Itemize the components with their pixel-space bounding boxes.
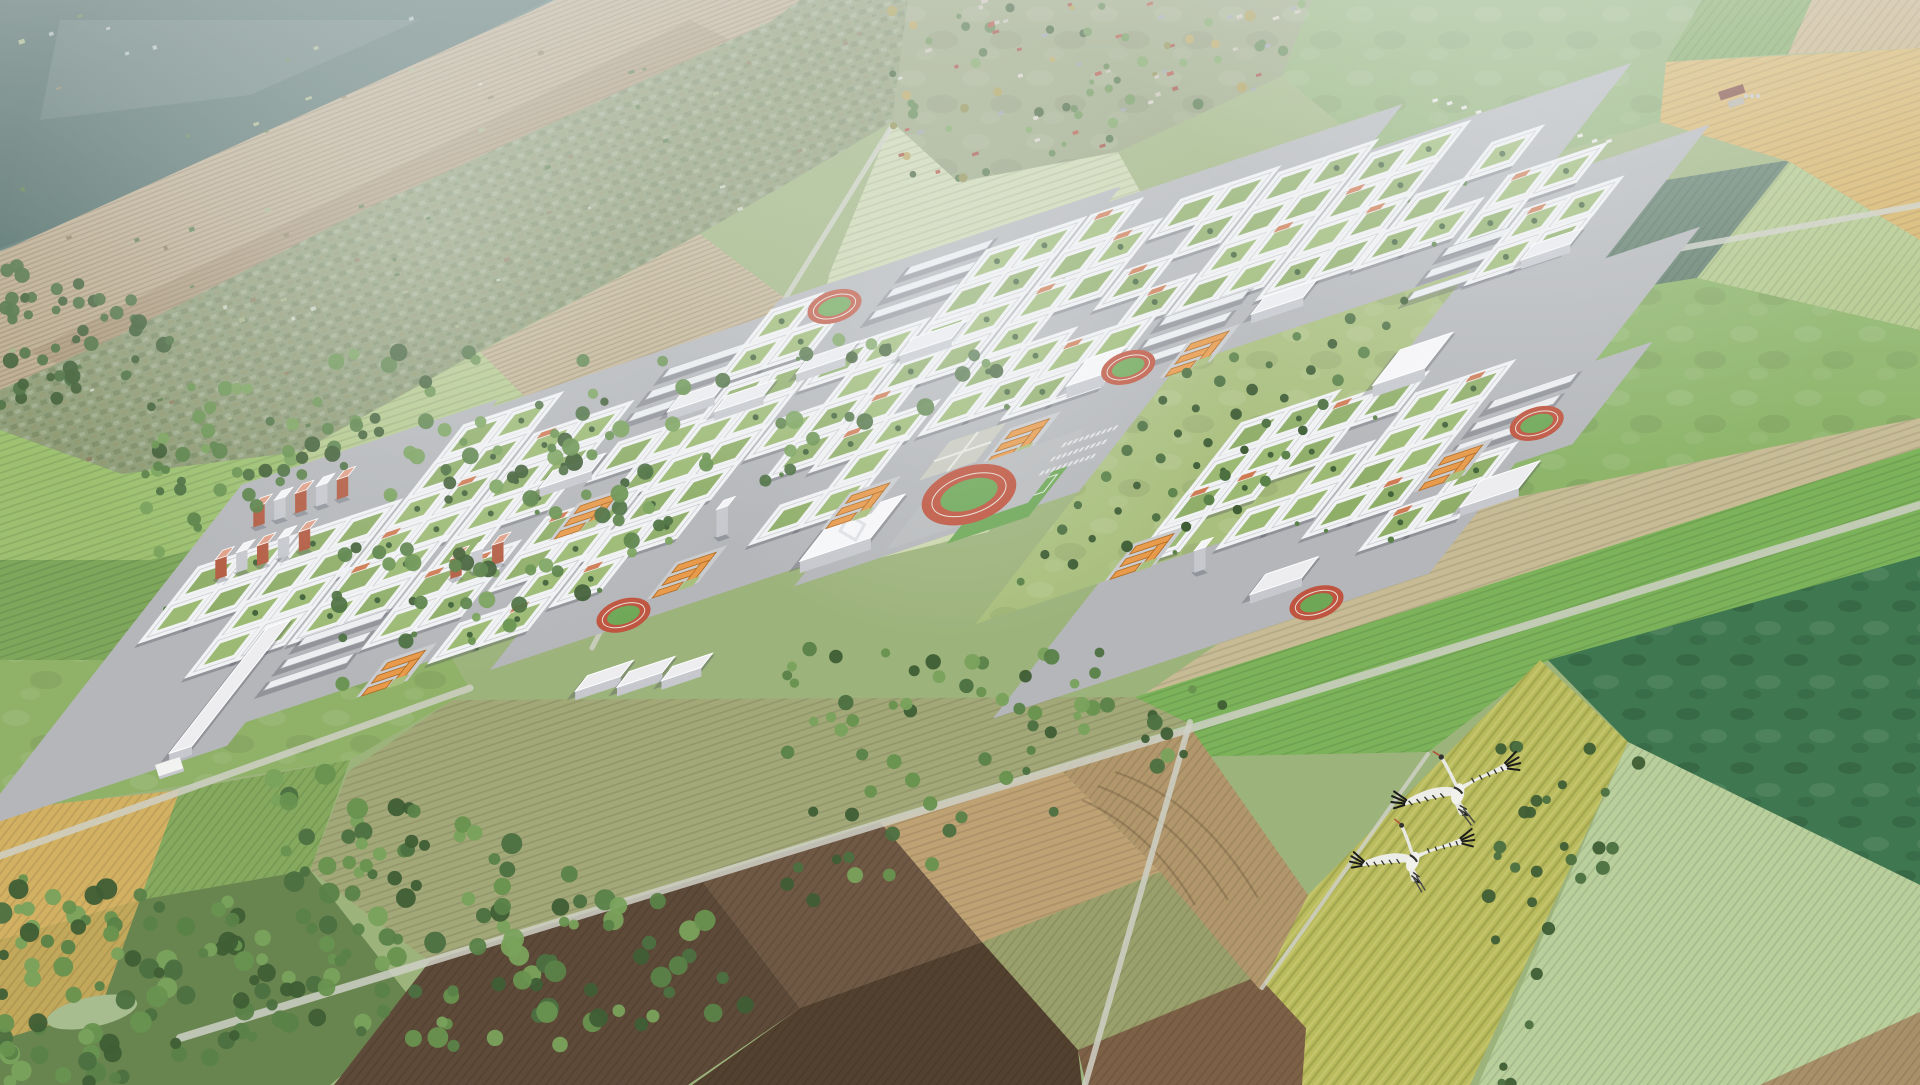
tree: [356, 838, 368, 850]
tree: [428, 1027, 449, 1048]
tree: [218, 932, 238, 952]
tree: [1542, 795, 1551, 804]
tree: [856, 749, 868, 761]
tree: [374, 982, 390, 998]
tree: [225, 913, 239, 927]
tree: [1512, 741, 1523, 752]
tree: [494, 898, 511, 915]
tree: [265, 769, 284, 788]
tree: [642, 936, 656, 950]
tree: [1584, 743, 1596, 755]
tree: [1531, 795, 1543, 807]
tree: [694, 910, 715, 931]
tree: [544, 960, 566, 982]
tree: [256, 953, 268, 965]
tree: [266, 999, 277, 1010]
tree: [318, 979, 336, 997]
tree: [318, 857, 336, 875]
generated-scene: [0, 0, 1920, 1085]
tree: [78, 1052, 97, 1071]
tree: [134, 888, 147, 901]
tree: [909, 665, 920, 676]
tree: [165, 960, 182, 977]
tree: [143, 916, 158, 931]
tree: [177, 918, 192, 933]
tree: [704, 1004, 723, 1023]
tree: [257, 964, 275, 982]
tree: [41, 935, 54, 948]
tree: [375, 956, 390, 971]
tree: [808, 807, 818, 817]
tree: [1049, 807, 1059, 817]
tree: [405, 1030, 422, 1047]
tower-side: [1194, 547, 1205, 573]
tree: [933, 670, 946, 683]
tree: [467, 825, 483, 841]
tree: [943, 824, 957, 838]
tree: [109, 1072, 121, 1084]
tree: [782, 670, 792, 680]
tree: [66, 987, 82, 1003]
tree: [900, 698, 912, 710]
tree: [959, 679, 973, 693]
tree: [1141, 735, 1150, 744]
tree: [832, 854, 842, 864]
tree: [1028, 706, 1043, 721]
tree: [1013, 703, 1025, 715]
tree: [552, 1037, 568, 1053]
tree: [1491, 935, 1500, 944]
tree: [513, 971, 532, 990]
tree: [0, 1041, 15, 1057]
tree: [284, 871, 305, 892]
tree: [964, 654, 980, 670]
tree: [1575, 873, 1586, 884]
tree: [793, 862, 804, 873]
tree: [71, 919, 86, 934]
tree: [881, 648, 890, 657]
tree: [669, 956, 688, 975]
tree: [787, 662, 797, 672]
tree: [584, 983, 598, 997]
tree: [1161, 748, 1176, 763]
tree: [1188, 685, 1196, 693]
tree: [491, 977, 505, 991]
tree: [53, 957, 73, 977]
tree: [360, 859, 373, 872]
tree: [633, 948, 649, 964]
tree: [1518, 806, 1531, 819]
tree: [296, 909, 312, 925]
tree: [469, 938, 486, 955]
tree: [1495, 743, 1506, 754]
tree: [170, 1038, 181, 1049]
tree: [781, 746, 794, 759]
tree: [834, 723, 848, 737]
tree: [130, 1011, 152, 1033]
tree: [847, 867, 863, 883]
tree: [30, 1046, 48, 1064]
tree: [1560, 842, 1569, 851]
tree: [499, 862, 515, 878]
street-tree: [1324, 529, 1328, 533]
tree: [368, 906, 388, 926]
tree: [845, 808, 859, 822]
tree: [887, 754, 902, 769]
tree: [1482, 889, 1496, 903]
courtyard-tree: [1242, 485, 1248, 491]
tree: [96, 878, 117, 899]
tree: [650, 893, 666, 909]
tree: [646, 1010, 659, 1023]
tree: [717, 972, 729, 984]
tree: [883, 869, 896, 882]
tree: [198, 948, 208, 958]
tree: [111, 947, 124, 960]
tree: [281, 846, 292, 857]
tree: [377, 1005, 390, 1018]
tree: [24, 970, 41, 987]
tree: [955, 811, 967, 823]
tree: [419, 840, 430, 851]
tree: [1019, 670, 1032, 683]
tree: [104, 1044, 122, 1062]
tree: [411, 880, 422, 891]
tree: [341, 829, 355, 843]
tree: [254, 983, 270, 999]
tree: [1089, 667, 1101, 679]
tree: [1027, 746, 1036, 755]
tree: [408, 984, 422, 998]
tree: [341, 949, 352, 960]
tree: [1074, 697, 1090, 713]
street-tree: [1388, 536, 1394, 542]
tree: [829, 650, 843, 664]
tree: [306, 923, 318, 935]
park-tree: [1260, 476, 1271, 487]
tree: [436, 1017, 447, 1028]
tree: [249, 975, 259, 985]
tree: [407, 804, 420, 817]
tree: [1078, 723, 1090, 735]
tree: [63, 900, 77, 914]
aerial-masterplan-render: Aerial rendering of a planned linear res…: [0, 0, 1920, 1085]
tree: [61, 940, 75, 954]
tree: [885, 826, 900, 841]
tree: [373, 847, 387, 861]
tree: [925, 857, 939, 871]
tree: [234, 951, 254, 971]
tree: [1150, 759, 1165, 774]
tree: [476, 908, 491, 923]
tree: [229, 1030, 240, 1041]
tree: [462, 892, 476, 906]
tree: [147, 986, 168, 1007]
tree: [1217, 700, 1227, 710]
tree: [153, 901, 165, 913]
tree: [315, 764, 336, 785]
tree: [889, 701, 898, 710]
tree: [494, 878, 511, 895]
tree: [1592, 841, 1605, 854]
tree: [737, 996, 754, 1013]
tree: [29, 1013, 48, 1032]
tree: [809, 717, 819, 727]
tree: [996, 693, 1009, 706]
tree: [790, 678, 799, 687]
tree: [780, 877, 794, 891]
tree: [536, 1001, 558, 1023]
tree: [905, 773, 920, 788]
tree: [289, 981, 306, 998]
tree: [343, 856, 357, 870]
courtyard-tree: [1397, 519, 1403, 525]
tree: [1525, 1020, 1534, 1029]
tree: [319, 916, 338, 935]
tree: [663, 986, 675, 998]
tree: [501, 833, 522, 854]
park-tree: [1233, 505, 1242, 514]
tree: [424, 932, 446, 954]
tree: [379, 928, 397, 946]
tree: [1100, 697, 1115, 712]
tree: [1558, 780, 1567, 789]
tree: [154, 967, 165, 978]
tree: [125, 950, 142, 967]
tree: [1596, 861, 1610, 875]
tree: [233, 992, 249, 1008]
tree: [1027, 720, 1038, 731]
tree: [923, 796, 937, 810]
tree: [846, 714, 859, 727]
street-tree: [1295, 521, 1300, 526]
tree: [864, 785, 877, 798]
tree: [978, 752, 991, 765]
tree: [116, 990, 136, 1010]
tree: [1494, 841, 1507, 854]
tree: [926, 654, 941, 669]
tree: [396, 888, 416, 908]
tree: [1070, 679, 1080, 689]
tree: [613, 1004, 626, 1017]
tree: [1601, 788, 1610, 797]
tree: [569, 919, 579, 929]
tree: [559, 917, 569, 927]
tree: [802, 642, 816, 656]
tree: [1527, 897, 1537, 907]
tree: [1606, 842, 1619, 855]
tree: [1095, 648, 1105, 658]
tree: [11, 1061, 31, 1081]
tree: [20, 923, 39, 942]
tree: [826, 712, 836, 722]
tree: [388, 798, 406, 816]
tree: [999, 771, 1013, 785]
tree: [177, 986, 196, 1005]
tree: [335, 677, 349, 691]
tree: [319, 936, 335, 952]
tree: [1022, 767, 1030, 775]
tree: [1632, 756, 1645, 769]
tree: [1073, 712, 1081, 720]
tree: [1566, 854, 1577, 865]
tree: [489, 853, 501, 865]
tree: [976, 687, 986, 697]
tree: [211, 902, 226, 917]
tree: [1044, 649, 1060, 665]
tree: [298, 829, 315, 846]
tree: [272, 1010, 289, 1027]
tree: [561, 866, 578, 883]
tree: [1510, 862, 1520, 872]
tree: [806, 893, 820, 907]
tree: [447, 985, 458, 996]
tree: [573, 894, 587, 908]
tree: [55, 1067, 71, 1083]
street-tree: [1173, 550, 1178, 555]
tree: [78, 1029, 94, 1045]
tree: [1531, 968, 1543, 980]
tree: [9, 879, 29, 899]
tree: [1542, 922, 1555, 935]
tree: [635, 1018, 649, 1032]
tree: [45, 889, 61, 905]
tree: [280, 792, 298, 810]
tree: [447, 1040, 459, 1052]
render-canvas: [0, 0, 1920, 1085]
tree: [651, 967, 672, 988]
tree: [347, 798, 368, 819]
tree: [1499, 1063, 1507, 1071]
tree: [319, 883, 340, 904]
tree: [552, 898, 570, 916]
tree: [345, 885, 361, 901]
tree: [1045, 726, 1057, 738]
tree: [308, 1009, 326, 1027]
tree: [95, 981, 105, 991]
tree: [255, 930, 271, 946]
tree: [838, 695, 853, 710]
tree: [405, 835, 418, 848]
tree: [353, 923, 365, 935]
tree: [1179, 750, 1188, 759]
tree: [1147, 714, 1163, 730]
tree: [509, 945, 530, 966]
tree: [487, 1030, 503, 1046]
tree: [21, 902, 35, 916]
tree: [103, 926, 119, 942]
tree: [356, 1026, 366, 1036]
tree: [603, 920, 614, 931]
tree: [387, 871, 402, 886]
tree: [589, 1008, 608, 1027]
tree: [201, 1048, 219, 1066]
tree: [1161, 727, 1174, 740]
tree: [1531, 866, 1543, 878]
tree: [843, 852, 854, 863]
